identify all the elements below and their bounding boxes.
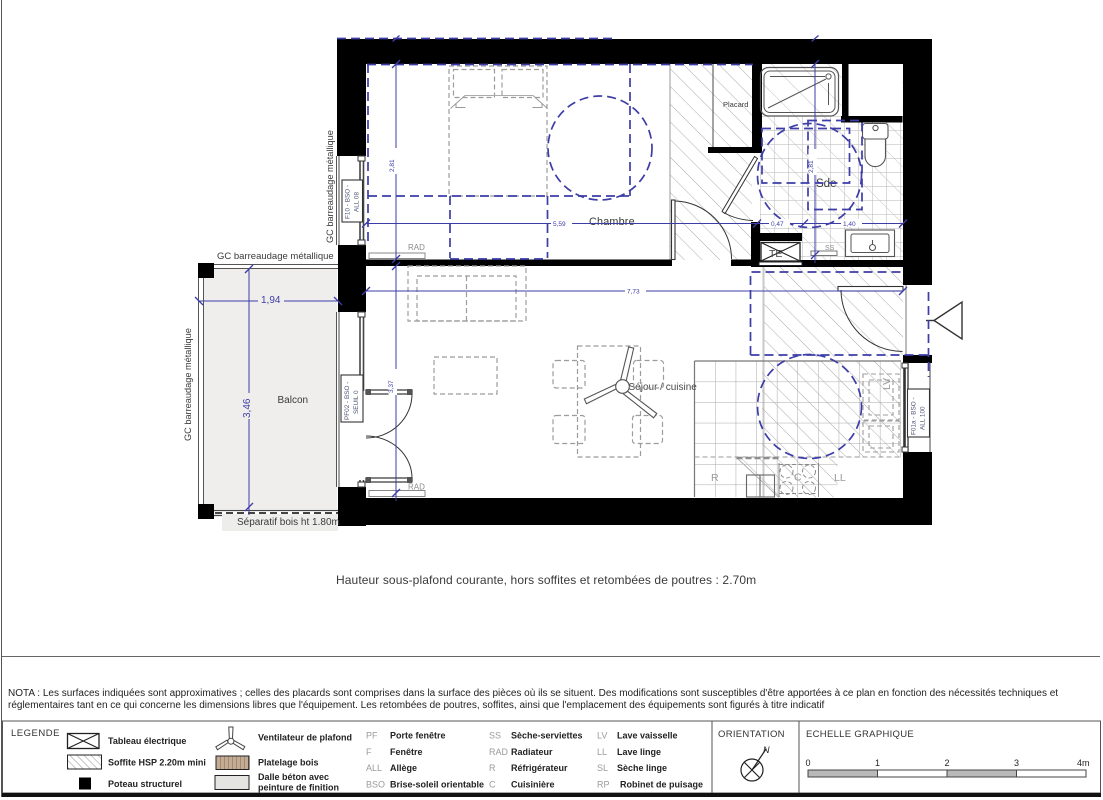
svg-text:Poteau structurel: Poteau structurel [108,779,182,789]
svg-text:Allège: Allège [390,763,417,773]
svg-text:BSO: BSO [366,780,385,790]
svg-text:LL: LL [834,472,846,484]
svg-text:SL: SL [597,763,608,773]
svg-text:ALL 08: ALL 08 [354,192,361,212]
svg-text:Séparatif bois ht 1.80m: Séparatif bois ht 1.80m [237,517,340,528]
svg-text:Balcon: Balcon [278,395,309,406]
svg-text:2: 2 [945,758,950,768]
svg-text:GC barreaudage métallique: GC barreaudage métallique [217,251,334,262]
svg-text:Brise-soleil orientable: Brise-soleil orientable [390,780,484,790]
svg-text:Hauteur sous-plafond courante,: Hauteur sous-plafond courante, hors soff… [336,573,756,587]
svg-text:SS: SS [825,245,835,252]
svg-text:N: N [763,745,770,755]
svg-text:Placard: Placard [723,100,748,109]
svg-text:2,81: 2,81 [389,159,396,172]
svg-text:PF02 - BSO -: PF02 - BSO - [344,382,351,420]
svg-text:Sèche-serviettes: Sèche-serviettes [511,731,583,741]
svg-text:1,40: 1,40 [843,221,856,228]
svg-text:GC barreaudage métallique: GC barreaudage métallique [183,328,193,441]
svg-text:Robinet de puisage: Robinet de puisage [620,780,703,790]
svg-text:Chambre: Chambre [589,216,635,228]
svg-text:Lave linge: Lave linge [617,747,661,757]
svg-text:3,46: 3,46 [242,398,253,418]
svg-text:0,47: 0,47 [771,221,784,228]
svg-text:Dalle béton avec: Dalle béton avec [258,772,329,782]
svg-text:Radiateur: Radiateur [511,747,553,757]
svg-text:SEUIL 0: SEUIL 0 [353,390,360,414]
svg-text:Fenêtre: Fenêtre [390,747,423,757]
svg-text:Réfrigérateur: Réfrigérateur [511,763,568,773]
svg-text:Platelage bois: Platelage bois [258,758,319,768]
svg-text:R: R [489,763,496,773]
svg-text:2,81: 2,81 [808,160,815,173]
svg-text:peinture de finition: peinture de finition [258,783,339,793]
svg-text:1,94: 1,94 [261,295,281,306]
svg-text:RAD: RAD [408,483,425,492]
svg-text:Lave vaisselle: Lave vaisselle [617,731,678,741]
svg-text:Sde: Sde [816,178,836,190]
svg-text:LEGENDE: LEGENDE [11,728,60,739]
svg-text:réglementaires tant en ce qui: réglementaires tant en ce qui concerne l… [8,700,825,711]
svg-text:ECHELLE GRAPHIQUE: ECHELLE GRAPHIQUE [806,729,914,740]
svg-text:Porte fenêtre: Porte fenêtre [390,731,446,741]
svg-text:ALL 100: ALL 100 [920,406,927,430]
svg-text:LV: LV [597,731,607,741]
svg-text:7,73: 7,73 [627,289,640,296]
svg-text:SS: SS [489,731,501,741]
svg-text:RAD: RAD [489,747,509,757]
svg-text:NOTA : Les surfaces indiquées: NOTA : Les surfaces indiquées sont appro… [8,688,1058,699]
svg-text:Sèche linge: Sèche linge [617,763,667,773]
svg-text:R: R [711,472,719,484]
svg-text:1: 1 [875,758,880,768]
svg-text:Ventilateur de plafond: Ventilateur de plafond [258,733,352,743]
svg-text:3,37: 3,37 [388,380,395,393]
svg-text:Cuisinière: Cuisinière [511,780,555,790]
svg-text:RP: RP [597,780,610,790]
svg-text:ORIENTATION: ORIENTATION [718,729,785,740]
svg-text:4m: 4m [1077,758,1090,768]
svg-text:PF: PF [366,731,378,741]
svg-text:5,59: 5,59 [553,221,566,228]
svg-text:GC barreaudage métallique: GC barreaudage métallique [325,130,335,243]
svg-text:0: 0 [806,758,811,768]
svg-text:RAD: RAD [408,243,425,252]
svg-text:C: C [794,472,802,484]
svg-text:TE: TE [769,248,782,260]
svg-text:Soffite HSP 2.20m mini: Soffite HSP 2.20m mini [108,758,206,768]
svg-text:F01a - BSO -: F01a - BSO - [911,397,918,435]
svg-text:LV: LV [881,378,893,390]
svg-text:LL: LL [597,747,607,757]
svg-text:F: F [366,747,372,757]
svg-text:3: 3 [1014,758,1019,768]
svg-text:F10 - BSO -: F10 - BSO - [345,185,352,219]
svg-text:ALL: ALL [366,763,382,773]
svg-text:Tableau électrique: Tableau électrique [108,736,186,746]
svg-text:C: C [489,780,496,790]
